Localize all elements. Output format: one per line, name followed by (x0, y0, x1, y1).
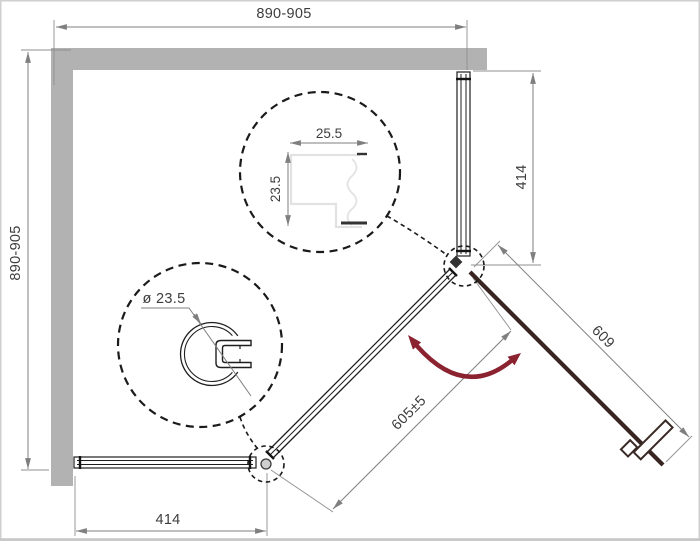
dim-left-depth-label: 890-905 (8, 225, 24, 280)
dim-right-panel: 414 (471, 71, 541, 265)
dim-bottom-panel: 414 (75, 473, 267, 536)
leader-line (141, 308, 251, 396)
dim-right-panel-label: 414 (514, 164, 530, 189)
wall-top (51, 48, 487, 70)
round-profile-diameter-label: ø 23.5 (143, 291, 186, 307)
fixed-panel-bottom (74, 456, 256, 469)
dim-bottom-panel-label: 414 (155, 512, 180, 528)
extension-line (666, 436, 692, 462)
swing-arc (417, 346, 511, 377)
dim-door-length-label: 609 (588, 323, 617, 352)
profile-spring (348, 159, 357, 225)
leader-arrow (194, 314, 201, 324)
extension-line (271, 470, 333, 512)
shower-enclosure-technical-drawing: 890-905 890-905 414 414 609 605±5 (0, 0, 700, 541)
hinge-block (450, 256, 463, 269)
wall-left (51, 48, 73, 486)
extension-line (474, 241, 500, 267)
dim-entry-opening-label: 605±5 (389, 393, 430, 434)
clamp-width-label: 25.5 (316, 126, 342, 141)
door-handle (621, 413, 673, 465)
detail-leader-dashed (387, 216, 447, 255)
enclosure-plan-svg: 890-905 890-905 414 414 609 605±5 (0, 0, 700, 541)
detail-leader-dashed (240, 417, 257, 448)
dim-top-width: 890-905 (54, 6, 467, 85)
glass-panel (457, 72, 470, 256)
detail-clamp-profile: 25.5 23.5 (240, 92, 447, 255)
glass-line (270, 272, 453, 455)
detail-circle (240, 92, 400, 252)
dim-top-width-label: 890-905 (256, 6, 311, 22)
hinge-pivot-block (450, 256, 463, 269)
extension-line (473, 278, 511, 330)
dimension-line (498, 245, 689, 437)
glass-panel (74, 457, 256, 468)
detail-round-profile: ø 23.5 (118, 263, 282, 448)
glass-line (273, 275, 456, 458)
clamp-height-label: 23.5 (268, 176, 283, 202)
door-swing-arrow (408, 335, 521, 377)
fixed-panel-right (456, 72, 471, 256)
detail-circle (118, 263, 282, 427)
dim-entry-opening: 605±5 (271, 278, 511, 512)
fixed-panel-diagonal (266, 268, 457, 459)
dimension-line (333, 331, 511, 509)
hinge-pivot-pin (261, 459, 271, 469)
glass-line (267, 269, 450, 452)
